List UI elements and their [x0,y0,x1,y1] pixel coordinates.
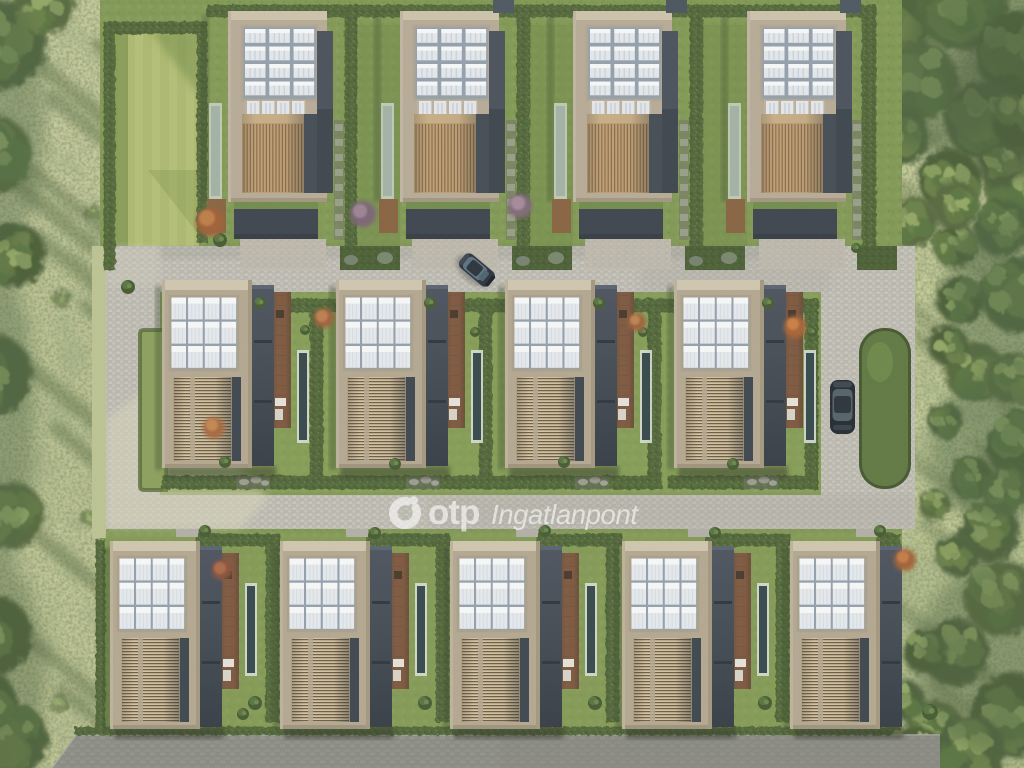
svg-text:otp: otp [428,493,479,532]
svg-text:Ingatlanpont: Ingatlanpont [491,499,639,530]
